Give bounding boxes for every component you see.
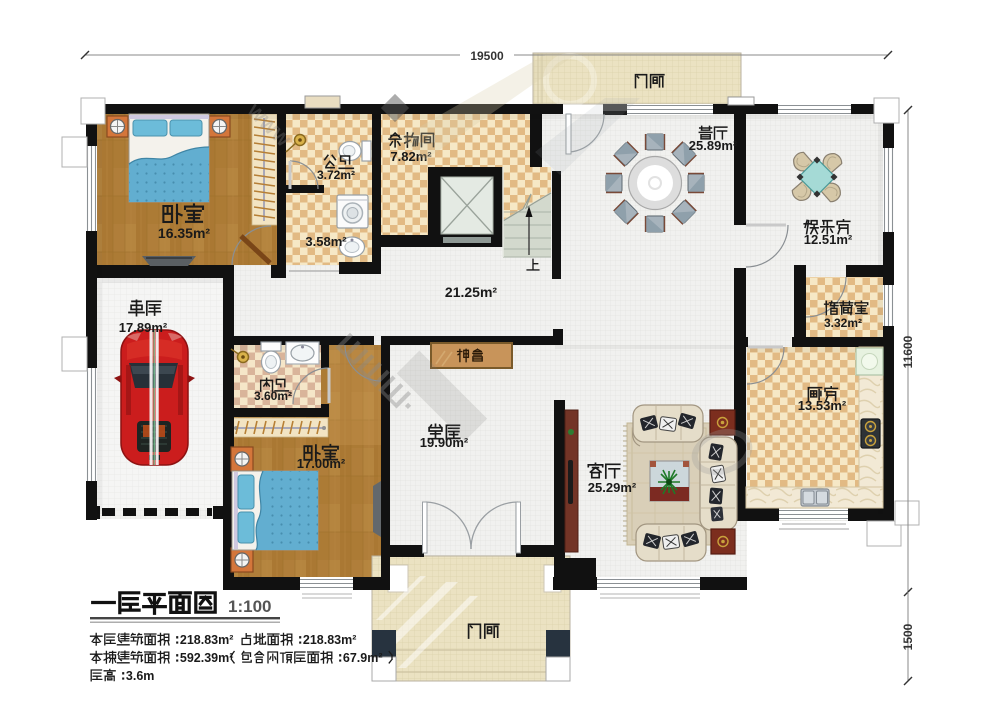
svg-text:17.00m²: 17.00m²: [297, 456, 346, 471]
svg-text:1500: 1500: [901, 623, 915, 650]
svg-text:218.83m²: 218.83m²: [303, 633, 357, 647]
svg-text:12.51m²: 12.51m²: [804, 232, 853, 247]
svg-text:13.53m²: 13.53m²: [798, 398, 847, 413]
svg-text:1:100: 1:100: [228, 597, 271, 616]
svg-text:17.89m²: 17.89m²: [119, 320, 168, 335]
svg-text:25.89m²: 25.89m²: [689, 138, 738, 153]
svg-text:3.72m²: 3.72m²: [317, 168, 355, 182]
svg-text:19500: 19500: [470, 49, 504, 63]
svg-text:11600: 11600: [901, 335, 915, 368]
svg-text:16.35m²: 16.35m²: [158, 225, 210, 241]
svg-text:592.39m²: 592.39m²: [180, 651, 234, 665]
svg-text:21.25m²: 21.25m²: [445, 284, 497, 300]
svg-text:3.60m²: 3.60m²: [254, 389, 292, 403]
svg-text:25.29m²: 25.29m²: [588, 480, 637, 495]
svg-text:3.32m²: 3.32m²: [824, 316, 862, 330]
svg-text:3.58m²: 3.58m²: [305, 234, 347, 249]
svg-text:67.9m²: 67.9m²: [343, 651, 383, 665]
svg-text:218.83m²: 218.83m²: [180, 633, 234, 647]
svg-text:3.6m: 3.6m: [126, 669, 154, 683]
